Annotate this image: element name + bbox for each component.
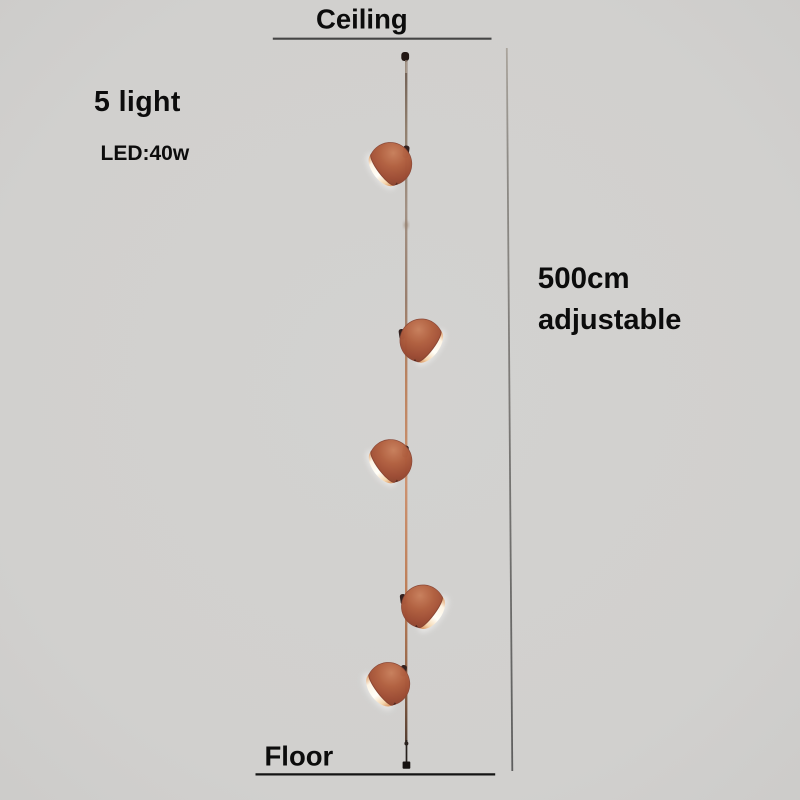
svg-text:Floor: Floor [265,741,334,772]
svg-text:Ceiling: Ceiling [316,3,408,34]
svg-text:adjustable: adjustable [538,304,681,336]
svg-text:500cm: 500cm [538,262,630,295]
svg-text:5 light: 5 light [94,86,181,118]
svg-text:LED:40w: LED:40w [101,142,190,165]
